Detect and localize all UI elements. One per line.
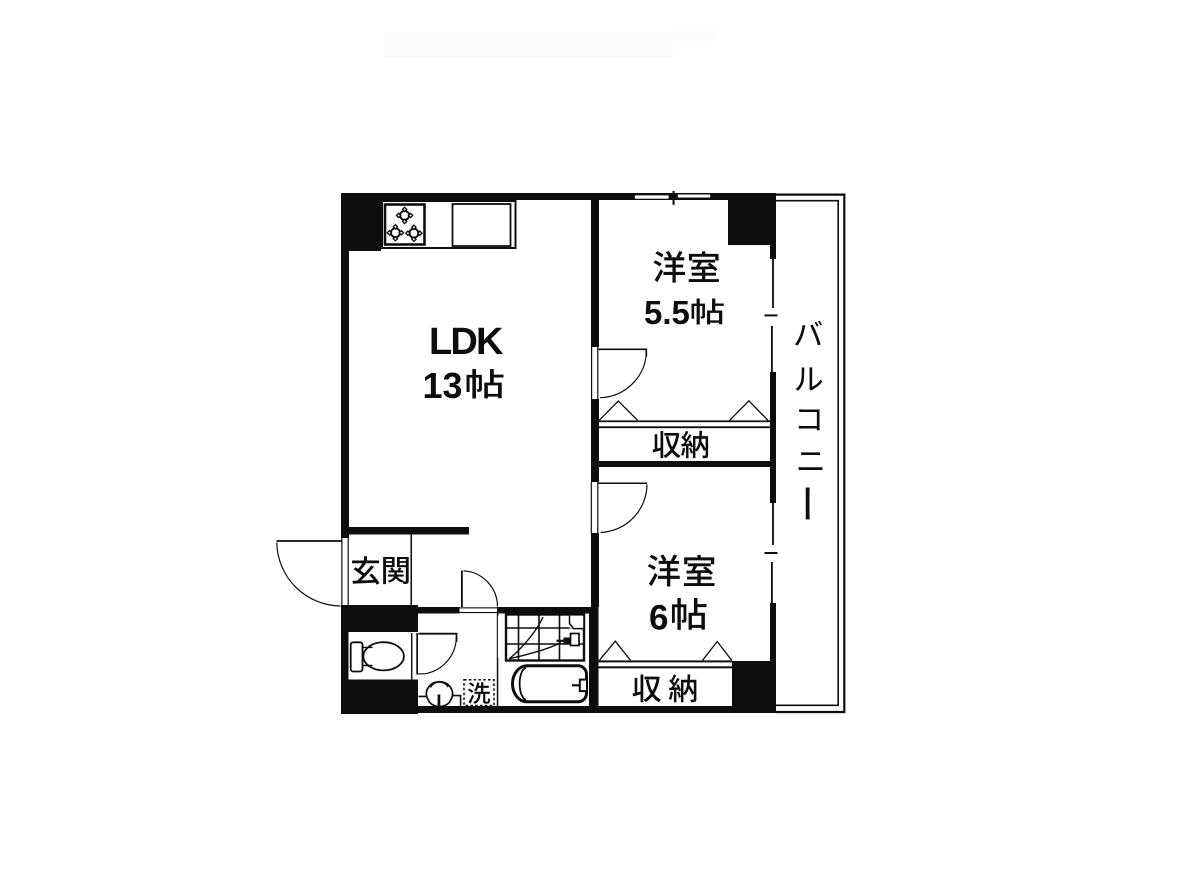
svg-text:6: 6 xyxy=(649,599,668,638)
svg-text:5.5: 5.5 xyxy=(644,294,690,331)
svg-text:13: 13 xyxy=(423,365,463,406)
svg-text:LDK: LDK xyxy=(429,321,504,363)
